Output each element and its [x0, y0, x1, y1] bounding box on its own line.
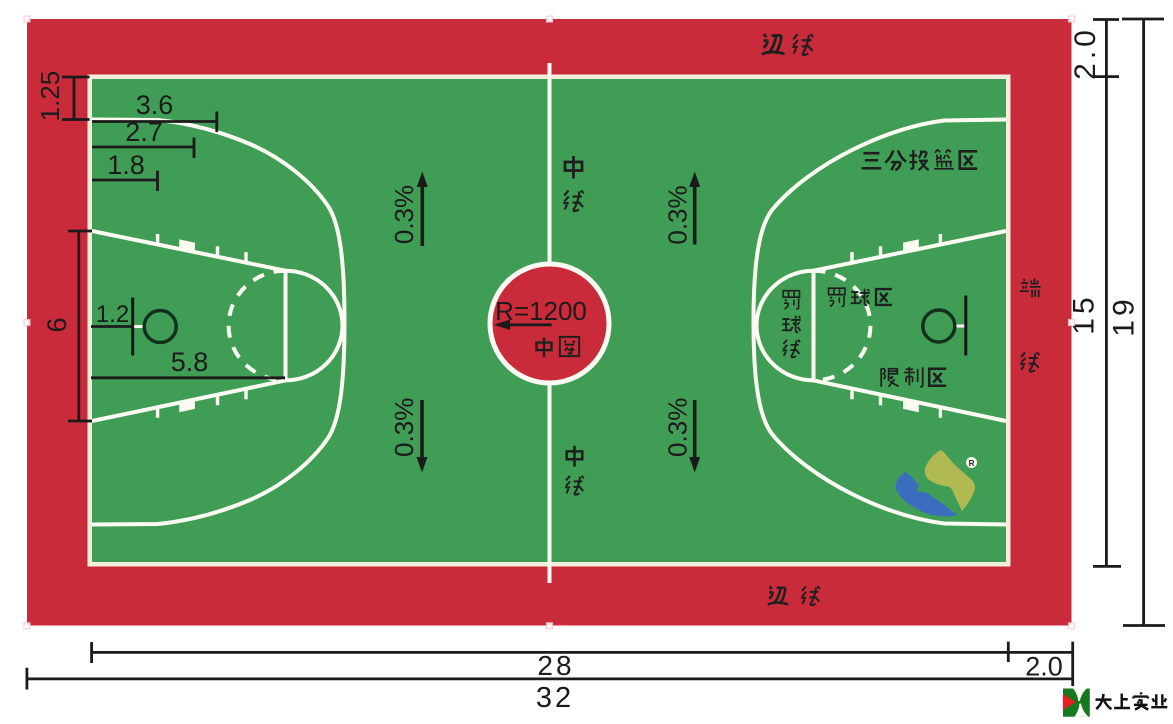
svg-text:R: R	[969, 459, 975, 468]
svg-text:15: 15	[1067, 293, 1100, 334]
svg-text:2.7: 2.7	[125, 117, 163, 147]
svg-text:2.0: 2.0	[1069, 26, 1102, 80]
svg-text:32: 32	[536, 682, 574, 714]
svg-text:19: 19	[1108, 295, 1141, 336]
svg-text:28: 28	[537, 650, 574, 681]
svg-text:1.25: 1.25	[35, 71, 65, 122]
svg-text:3.6: 3.6	[136, 90, 174, 120]
svg-text:0.3%: 0.3%	[662, 398, 692, 457]
svg-text:0.3%: 0.3%	[662, 185, 692, 244]
svg-text:0.3%: 0.3%	[389, 185, 419, 244]
svg-text:1.8: 1.8	[107, 150, 145, 180]
svg-text:0.3%: 0.3%	[389, 398, 419, 457]
svg-text:5.8: 5.8	[171, 347, 209, 377]
svg-text:1.2: 1.2	[96, 301, 129, 328]
svg-text:2.0: 2.0	[1025, 652, 1063, 682]
svg-text:R=1200: R=1200	[495, 296, 587, 326]
svg-text:6: 6	[42, 317, 72, 332]
